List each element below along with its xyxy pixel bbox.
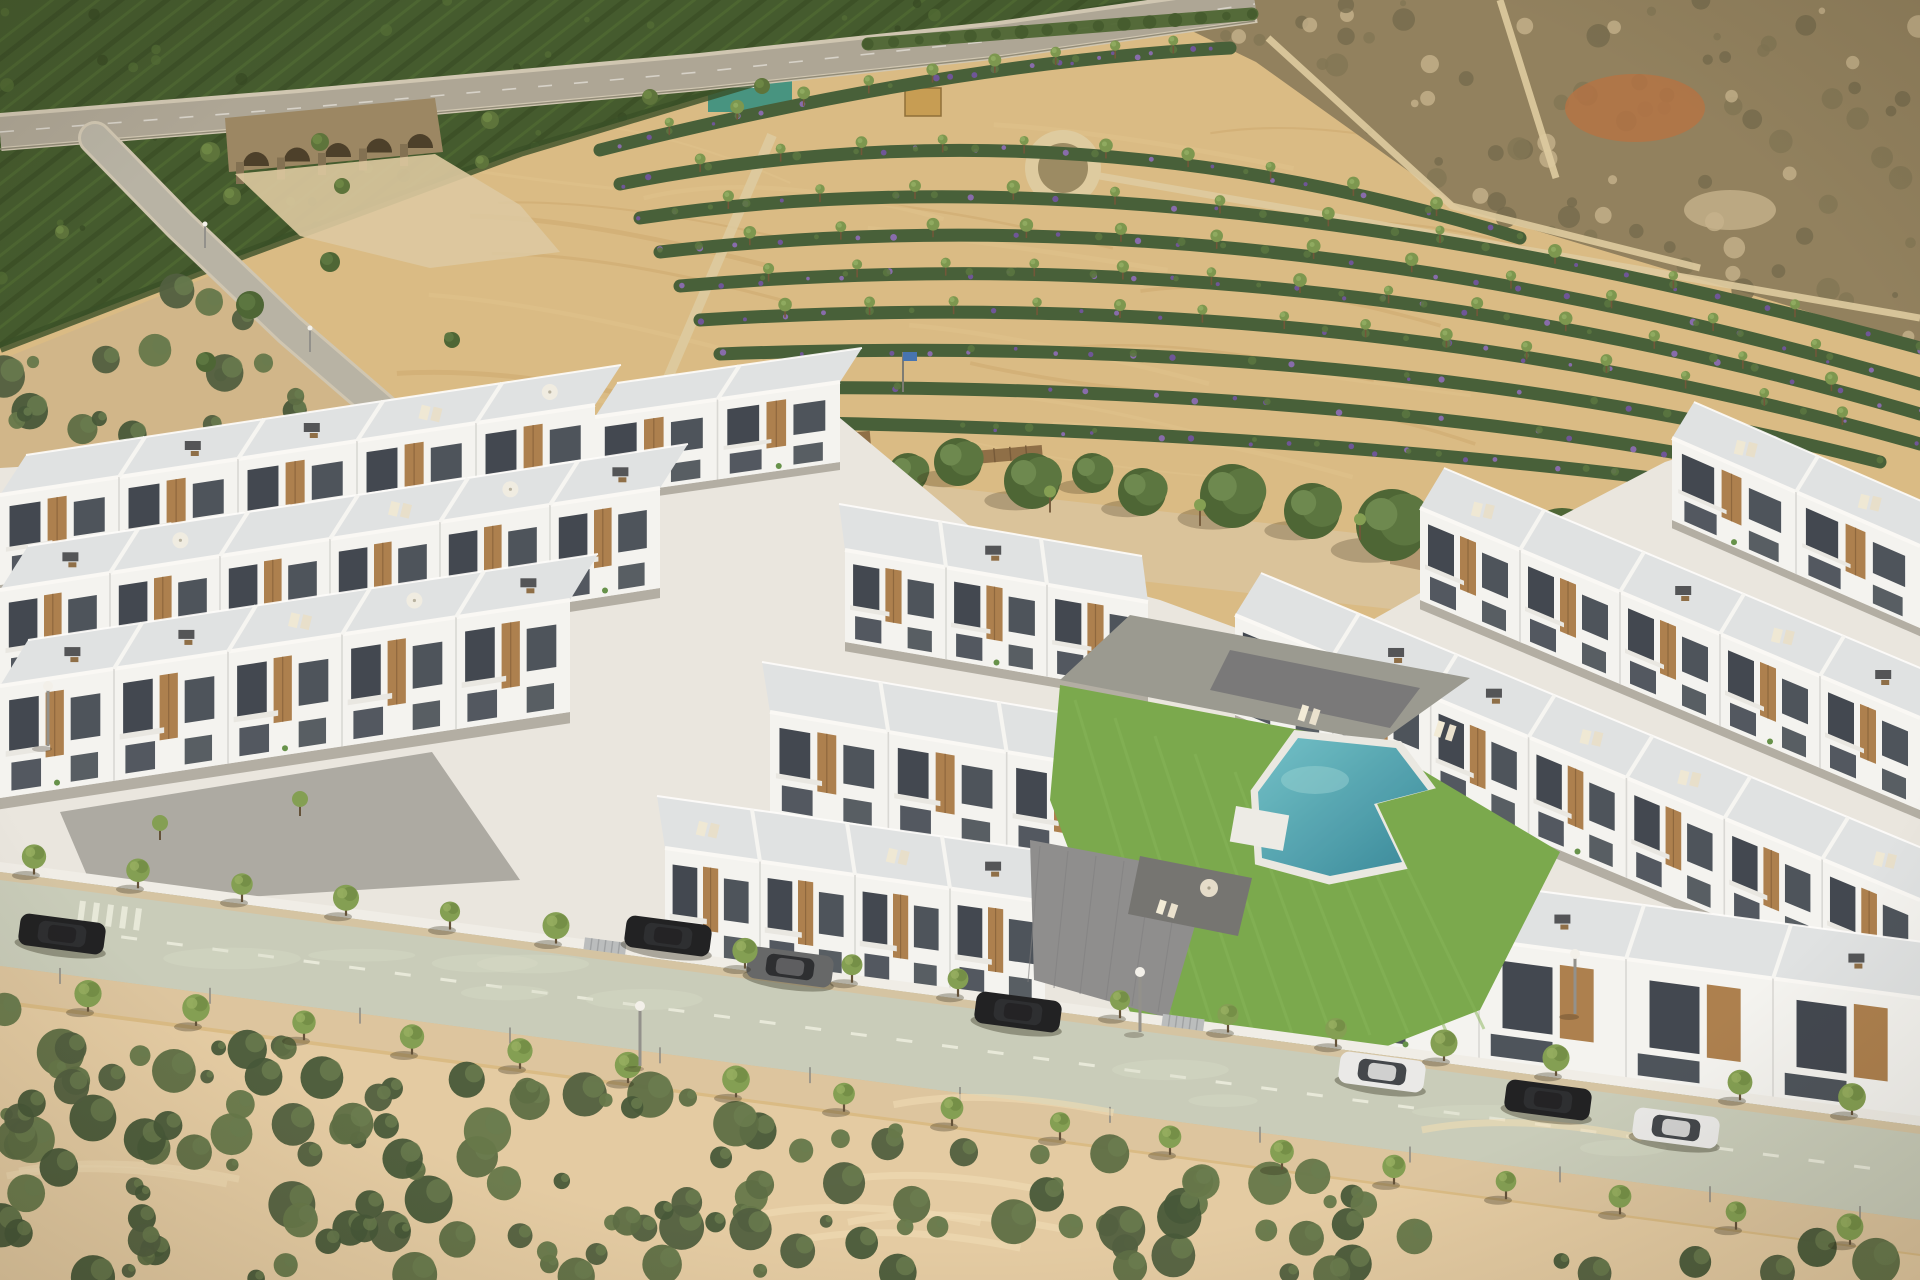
light-overlay (0, 0, 1920, 1280)
vignette (0, 0, 1920, 1280)
aerial-render-photo (0, 0, 1920, 1280)
scene-canvas (0, 0, 1920, 1280)
